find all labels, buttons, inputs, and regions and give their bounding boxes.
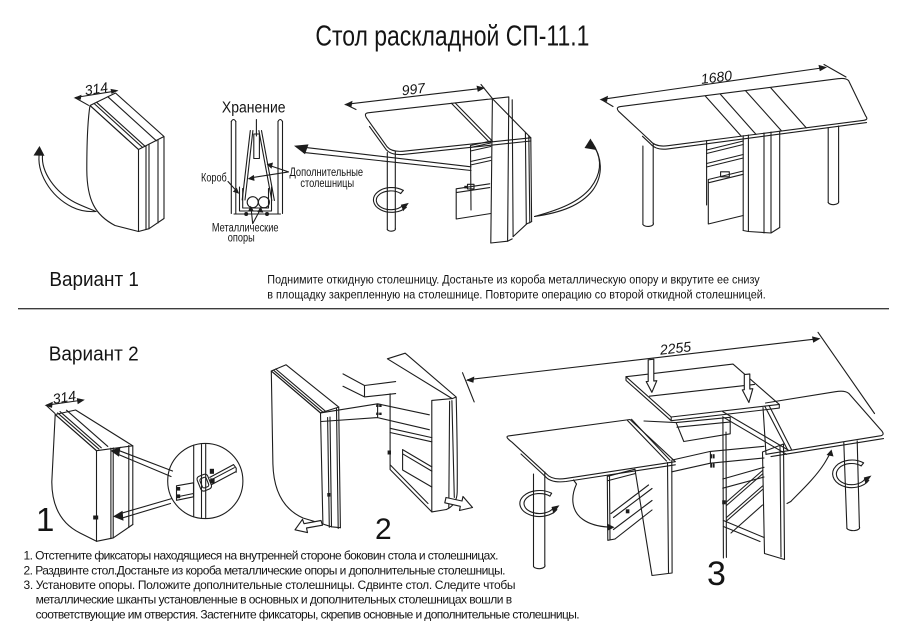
svg-text:столешницы: столешницы xyxy=(300,178,354,190)
svg-text:Стол раскладной СП-11.1: Стол раскладной СП-11.1 xyxy=(315,21,589,53)
svg-text:3: 3 xyxy=(707,555,726,593)
svg-text:1. Отстегните фиксаторы находя: 1. Отстегните фиксаторы находящиеся на в… xyxy=(24,548,499,562)
svg-text:Хранение: Хранение xyxy=(222,100,286,117)
svg-text:Вариант 2: Вариант 2 xyxy=(49,343,139,366)
svg-text:2: 2 xyxy=(375,513,392,546)
svg-text:в площадку закрепленную на сто: в площадку закрепленную на столешнице. П… xyxy=(267,287,766,301)
svg-text:Вариант 1: Вариант 1 xyxy=(49,268,138,291)
svg-text:1: 1 xyxy=(36,501,54,538)
svg-text:соответствующие им отверстия.: соответствующие им отверстия. Застегните… xyxy=(36,607,580,621)
svg-text:Поднимите откидную столешницу.: Поднимите откидную столешницу. Достаньте… xyxy=(267,272,759,286)
svg-text:опоры: опоры xyxy=(228,233,255,245)
svg-text:Короб: Короб xyxy=(201,173,227,185)
svg-text:3. Установите опоры. Положи: 3. Установите опоры. Положите дополнител… xyxy=(24,578,516,592)
svg-text:металлические шканты установ: металлические шканты установленные в осн… xyxy=(36,593,512,607)
svg-text:2. Раздвинте стол.Достаньте и: 2. Раздвинте стол.Достаньте из короба ме… xyxy=(24,563,506,577)
